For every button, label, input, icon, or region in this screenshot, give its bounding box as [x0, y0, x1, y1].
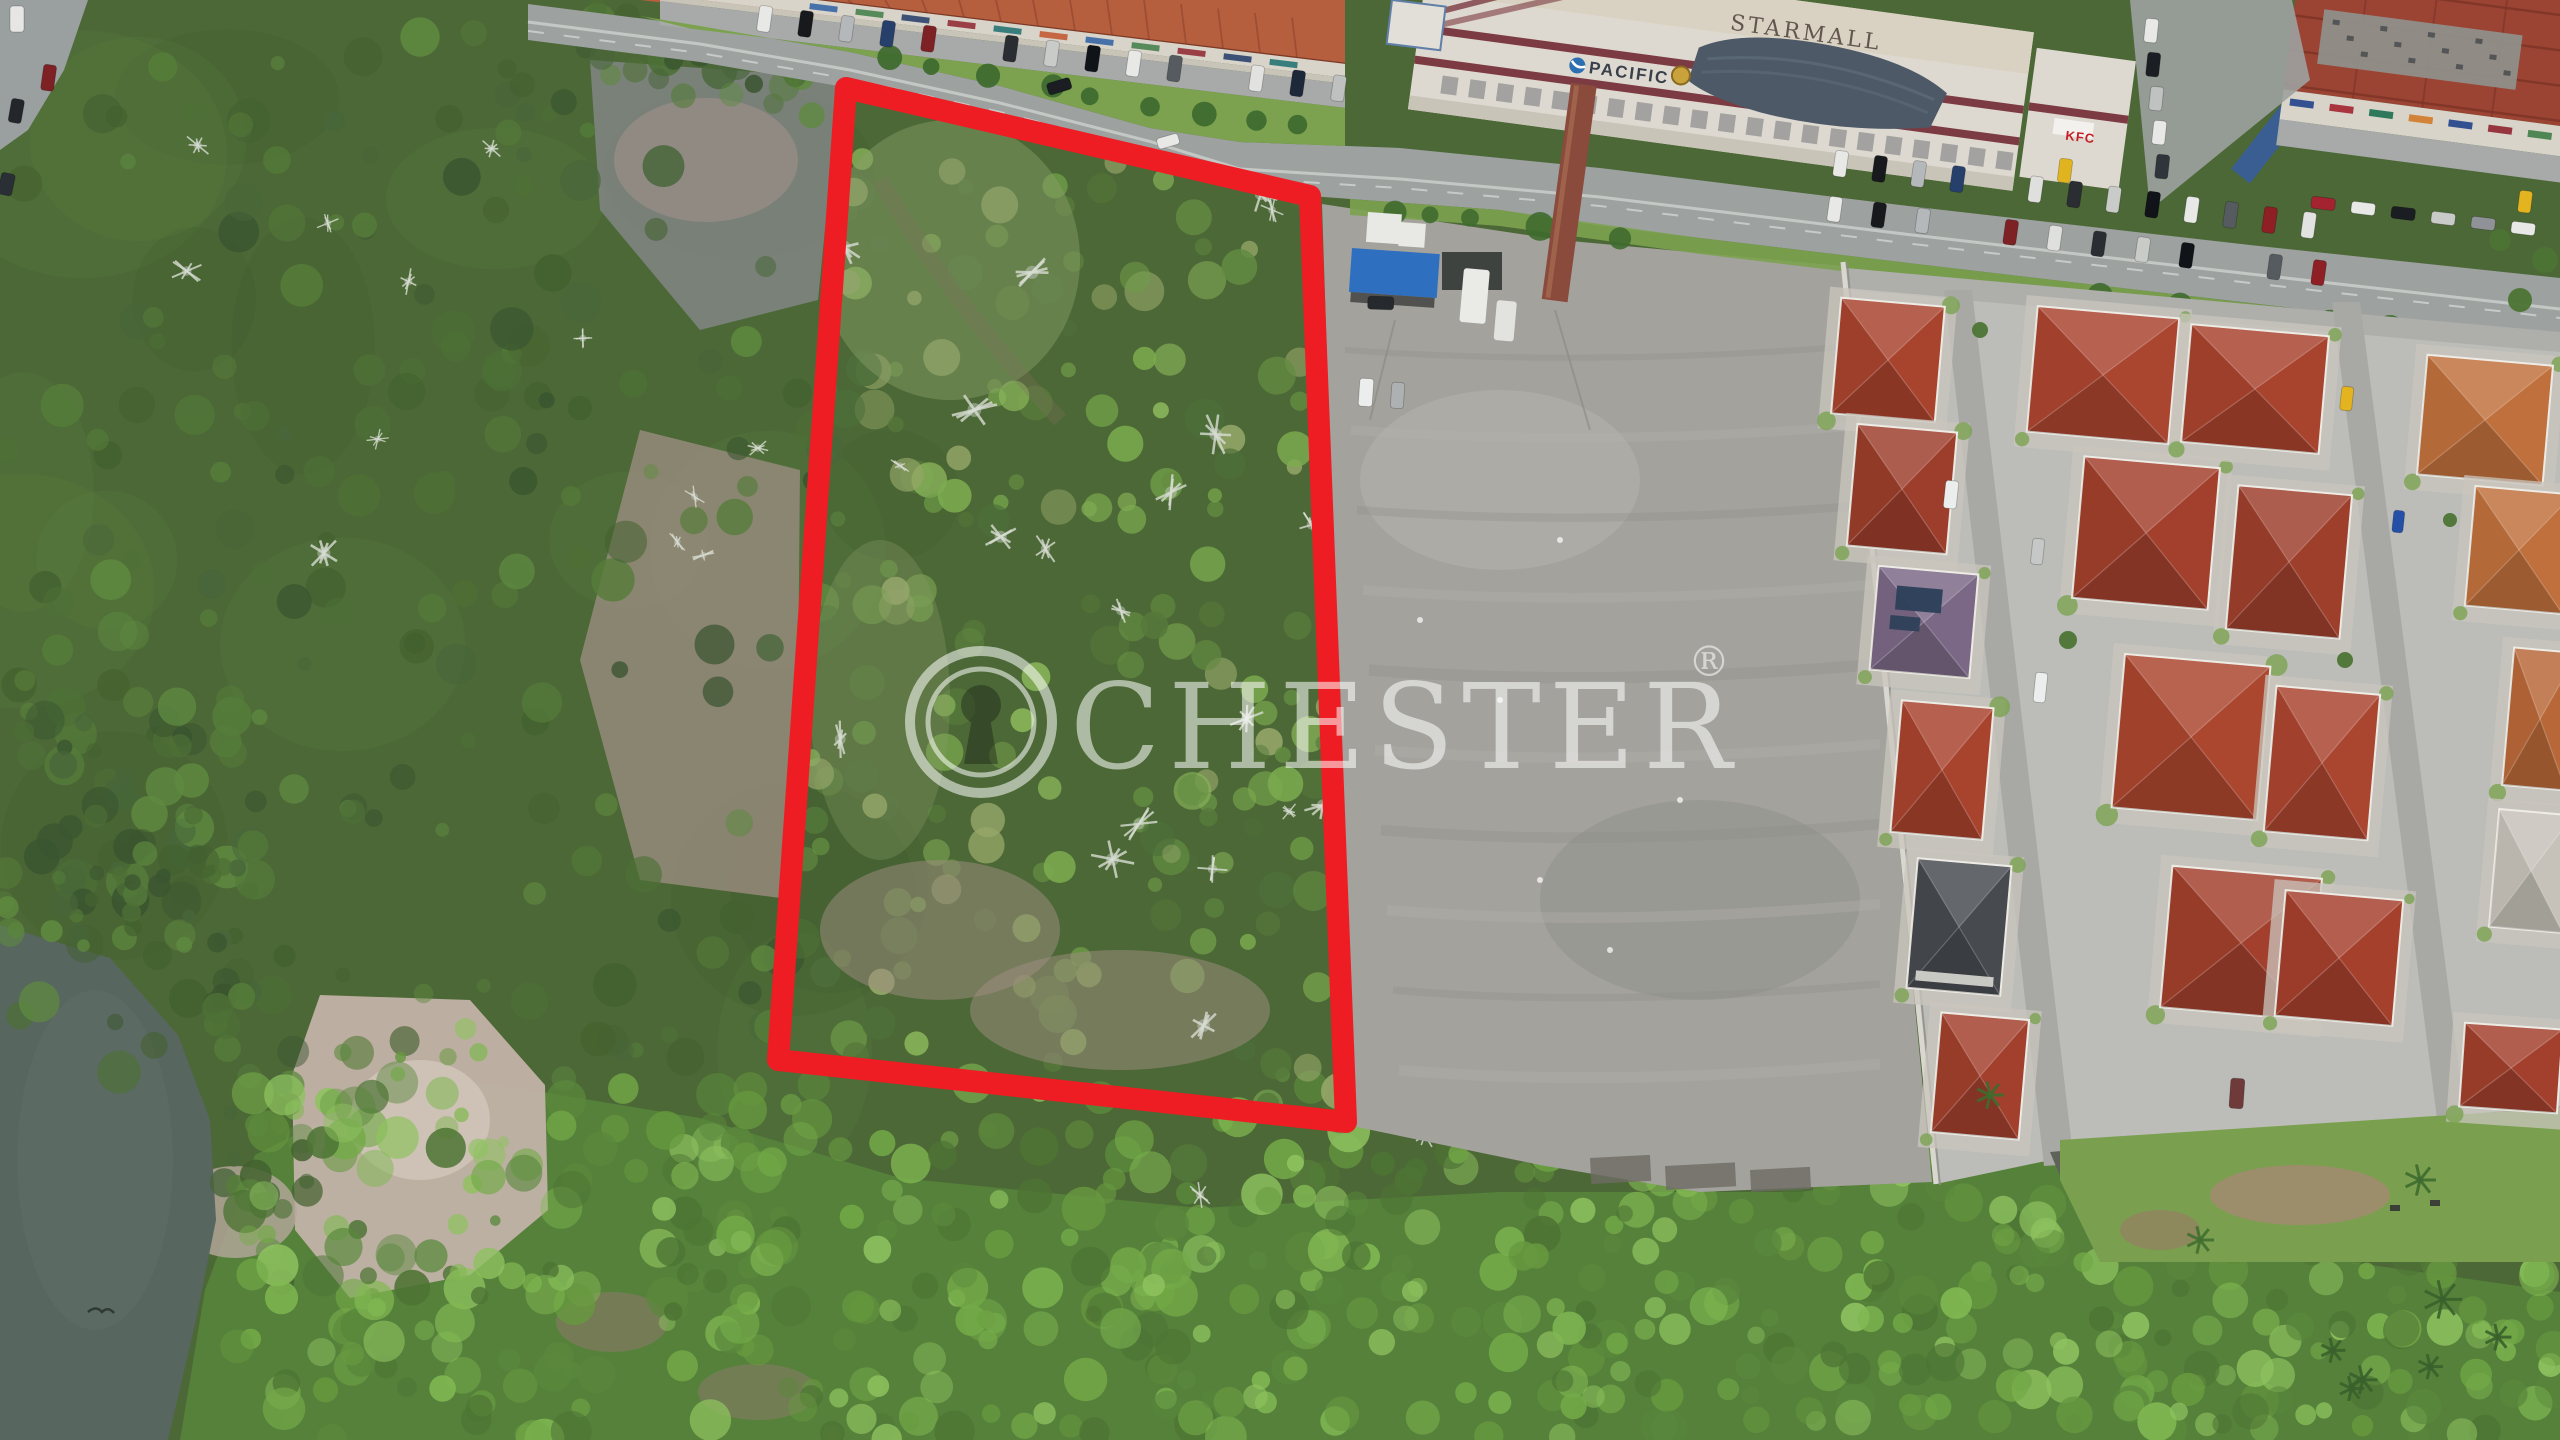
tree-canopy — [388, 373, 425, 410]
tree-canopy — [698, 1146, 734, 1182]
dirt-patch — [2120, 1210, 2200, 1250]
tree-canopy — [1284, 612, 1312, 640]
tree-canopy — [1570, 1198, 1595, 1223]
tree-canopy — [277, 584, 312, 619]
tree-canopy — [511, 982, 548, 1019]
tree-canopy — [2329, 1311, 2356, 1338]
tree-canopy — [418, 594, 447, 623]
tree-canopy — [1041, 489, 1077, 525]
tree-canopy — [52, 871, 66, 885]
tree-canopy — [245, 791, 267, 813]
tree-canopy — [228, 112, 253, 137]
tree-canopy — [2019, 1201, 2056, 1238]
tree-canopy — [1293, 1185, 1316, 1208]
tree-canopy — [334, 1044, 351, 1061]
tree-canopy — [1133, 347, 1156, 370]
tree-canopy — [1858, 1306, 1884, 1332]
storefront-window — [1884, 136, 1902, 156]
tree-canopy — [400, 629, 434, 663]
tree-canopy — [2212, 1414, 2232, 1434]
tree-canopy — [187, 845, 207, 865]
tree-canopy — [2137, 1402, 2176, 1440]
tree-canopy — [1864, 1261, 1895, 1292]
tree-canopy — [591, 558, 634, 601]
tree-canopy — [2009, 1266, 2029, 1286]
tree-canopy — [726, 809, 753, 836]
tree-canopy — [122, 903, 141, 922]
tree-canopy — [828, 1137, 852, 1161]
house — [2250, 675, 2394, 858]
tree-canopy — [439, 1048, 456, 1065]
roadside-tree — [1609, 227, 1631, 249]
tree-canopy — [771, 1286, 811, 1326]
tree-canopy — [490, 307, 533, 350]
tree-canopy — [1084, 493, 1113, 522]
tree-canopy — [978, 1113, 1014, 1149]
tree-canopy — [850, 1294, 880, 1324]
house — [2212, 474, 2365, 656]
tree-canopy — [2310, 1342, 2327, 1359]
car — [1358, 378, 1374, 407]
car — [2151, 120, 2166, 145]
tree-canopy — [225, 183, 263, 221]
tree-canopy — [252, 709, 268, 725]
storefront-window — [1968, 147, 1986, 167]
tree-canopy — [2465, 1321, 2493, 1349]
tree-canopy — [85, 893, 99, 907]
tree-canopy — [14, 670, 35, 691]
house — [1893, 847, 2026, 1013]
tree-canopy — [1395, 1167, 1423, 1195]
tree-canopy — [503, 1369, 537, 1403]
tree-canopy — [1277, 431, 1313, 467]
tree-canopy — [499, 554, 535, 590]
tree-canopy — [214, 858, 232, 876]
aerial-photo: STARMALL PACIFIC KFC CHESTER ® — [0, 0, 2560, 1440]
tree-canopy — [148, 874, 171, 897]
tree-canopy — [303, 456, 335, 488]
tree-canopy — [174, 395, 214, 435]
tree-canopy — [1243, 1384, 1268, 1409]
tree-canopy — [250, 1181, 279, 1210]
tree-canopy — [2146, 1370, 2168, 1392]
tree-canopy — [482, 351, 522, 391]
tree-canopy — [363, 1321, 404, 1362]
car — [1390, 382, 1405, 409]
car — [2431, 211, 2456, 226]
tree-canopy — [498, 59, 517, 78]
tree-canopy — [1154, 344, 1186, 376]
tree-canopy — [666, 1038, 704, 1076]
tree-canopy — [207, 933, 227, 953]
burnt-patch — [1590, 1155, 1651, 1184]
tree-canopy — [451, 580, 478, 607]
tree-canopy — [454, 1108, 469, 1123]
tree-canopy — [436, 644, 477, 685]
equipment — [2430, 1200, 2440, 1206]
tree-canopy — [677, 1263, 699, 1285]
tree-canopy — [2172, 1280, 2190, 1298]
tree-canopy — [727, 437, 750, 460]
tree-canopy — [580, 123, 595, 138]
tree-canopy — [737, 476, 758, 497]
tree-canopy — [1899, 1354, 1931, 1386]
tree-canopy — [1652, 1217, 1677, 1242]
median-tree — [1081, 87, 1099, 105]
tree-canopy — [1747, 1327, 1764, 1344]
tree-canopy — [1729, 1199, 1754, 1224]
tree-canopy — [365, 809, 383, 827]
tree-canopy — [1064, 1358, 1107, 1401]
tree-canopy — [292, 1176, 323, 1207]
tree-canopy — [435, 105, 463, 133]
tree-canopy — [1878, 1350, 1902, 1374]
tree-canopy — [441, 332, 471, 362]
tree-canopy — [236, 1259, 268, 1291]
tree-canopy — [397, 1377, 417, 1397]
tree-canopy — [525, 1275, 565, 1315]
debris — [1417, 617, 1423, 623]
tree-canopy — [904, 1031, 928, 1055]
tree-canopy — [220, 1330, 254, 1364]
tree-canopy — [1150, 899, 1181, 930]
tree-canopy — [1153, 1391, 1182, 1420]
tree-canopy — [1342, 1241, 1371, 1270]
tree-canopy — [734, 1072, 768, 1106]
tree-canopy — [400, 17, 439, 56]
storefront-window — [1857, 132, 1875, 152]
tree-canopy — [432, 471, 455, 494]
tree-canopy — [738, 981, 761, 1004]
tree-canopy — [1754, 1229, 1782, 1257]
tree-canopy — [658, 909, 681, 932]
tree-canopy — [2519, 1256, 2559, 1296]
tree-canopy — [323, 598, 353, 628]
tree-canopy — [546, 1111, 576, 1141]
tree-canopy — [829, 1388, 848, 1407]
tree-canopy — [745, 75, 763, 93]
house — [2476, 798, 2560, 950]
storefront-window — [1440, 76, 1458, 96]
tree-canopy — [1009, 474, 1024, 489]
tree-canopy — [888, 417, 904, 433]
tree-canopy — [2265, 1386, 2292, 1413]
tree-canopy — [1978, 1400, 2011, 1433]
tree-canopy — [755, 256, 776, 277]
tree-canopy — [2253, 1309, 2280, 1336]
tree-canopy — [340, 1342, 364, 1366]
white-tent — [1366, 212, 1402, 244]
tree-canopy — [913, 1342, 946, 1375]
storefront-window — [1551, 91, 1569, 111]
tree-canopy — [2388, 1285, 2407, 1304]
car — [1943, 480, 1959, 509]
tree-canopy — [298, 657, 312, 671]
debris — [1557, 537, 1563, 543]
tree-canopy — [1188, 261, 1226, 299]
tree-canopy — [1148, 878, 1162, 892]
tree-canopy — [1835, 1400, 1871, 1436]
tree-canopy — [784, 1122, 818, 1156]
tree-canopy — [1743, 1407, 1770, 1434]
tree-canopy — [1369, 1329, 1395, 1355]
tree-canopy — [2286, 1313, 2314, 1341]
tree-canopy — [460, 733, 475, 748]
tree-canopy — [216, 686, 245, 715]
tree-canopy — [680, 507, 708, 535]
tree-canopy — [210, 462, 231, 483]
tree-canopy — [891, 1144, 931, 1184]
house — [2452, 474, 2560, 631]
tree-canopy — [560, 160, 601, 201]
tree-canopy — [1086, 394, 1119, 427]
tree-canopy — [952, 1262, 978, 1288]
tree-canopy — [625, 856, 662, 893]
estate-tree — [1972, 322, 1988, 338]
tree-canopy — [719, 82, 743, 106]
tree-canopy — [740, 1151, 782, 1193]
tree-canopy — [1256, 911, 1281, 936]
tree-canopy — [595, 793, 618, 816]
tree-canopy — [1024, 1311, 1059, 1346]
tree-canopy — [1092, 284, 1118, 310]
tree-canopy — [946, 446, 971, 471]
dirt-patch — [2210, 1165, 2390, 1225]
tree-canopy — [2232, 1393, 2268, 1429]
tree-canopy — [2358, 1263, 2375, 1280]
tree-canopy — [778, 1377, 798, 1397]
tree-canopy — [448, 1214, 469, 1235]
estate-tree — [2337, 652, 2353, 668]
tree-canopy — [150, 334, 166, 350]
tree-canopy — [1283, 1356, 1307, 1380]
tree-canopy — [395, 1052, 406, 1063]
median-tree — [1140, 97, 1160, 117]
tree-canopy — [515, 177, 534, 196]
car — [2030, 538, 2045, 565]
tree-canopy — [920, 1371, 953, 1404]
tree-canopy — [68, 860, 88, 880]
tree-canopy — [2170, 1403, 2188, 1421]
car — [2154, 154, 2169, 179]
car — [2511, 221, 2536, 236]
median-tree — [1246, 110, 1266, 130]
tree-canopy — [964, 1299, 1008, 1343]
tree-canopy — [1208, 488, 1222, 502]
truck — [1494, 300, 1517, 342]
tree-canopy — [697, 936, 730, 969]
house — [2445, 1012, 2560, 1131]
tree-canopy — [1635, 1319, 1656, 1340]
tree-canopy — [624, 1159, 648, 1183]
tree-canopy — [2113, 1266, 2153, 1306]
tree-canopy — [1117, 505, 1146, 534]
tree-canopy — [24, 839, 60, 875]
tree-canopy — [143, 307, 164, 328]
tree-canopy — [1214, 1387, 1245, 1418]
tree-canopy — [1315, 1277, 1343, 1305]
tree-canopy — [2056, 1397, 2093, 1434]
solar-panels — [1895, 586, 1943, 614]
estate-tree — [2443, 513, 2457, 527]
tree-canopy — [2427, 1309, 2463, 1345]
tree-canopy — [415, 1320, 435, 1340]
tree-canopy — [912, 1273, 938, 1299]
tree-canopy — [799, 102, 825, 128]
tree-canopy — [490, 1215, 501, 1226]
tree-canopy — [1244, 818, 1264, 838]
tree-canopy — [623, 58, 648, 83]
tree-canopy — [1996, 1369, 2029, 1402]
storefront-window — [1635, 102, 1653, 122]
rock-tint — [614, 98, 798, 222]
tree-canopy — [1162, 845, 1181, 864]
roadside-tree — [1526, 212, 1555, 241]
tree-canopy — [510, 72, 535, 97]
car — [2351, 201, 2376, 216]
tree-canopy — [1346, 1297, 1378, 1329]
tree-canopy — [699, 1113, 727, 1141]
tree-canopy — [1020, 1127, 1059, 1166]
tree-canopy — [1249, 1251, 1268, 1270]
tree-canopy — [42, 635, 73, 666]
tree-canopy — [1606, 1333, 1628, 1355]
tree-canopy — [1141, 611, 1169, 639]
tree-canopy — [455, 1018, 477, 1040]
tree-canopy — [534, 1353, 573, 1392]
tree-canopy — [237, 830, 268, 861]
tree-canopy — [273, 945, 296, 968]
car — [2033, 672, 2048, 703]
tree-canopy — [534, 254, 572, 292]
soil-patch — [970, 950, 1270, 1070]
tree-canopy — [215, 509, 254, 548]
tree-canopy — [184, 806, 203, 825]
tree-canopy — [719, 900, 753, 934]
tree-canopy — [882, 1180, 903, 1201]
white-tent — [1398, 222, 1426, 248]
tree-canopy — [394, 1270, 430, 1306]
tree-canopy — [429, 1375, 456, 1402]
tree-canopy — [1839, 1353, 1871, 1385]
tree-canopy — [176, 937, 192, 953]
tree-canopy — [1796, 1397, 1824, 1425]
tree-canopy — [932, 1202, 956, 1226]
tree-canopy — [716, 375, 742, 401]
tree-canopy — [1087, 173, 1117, 203]
tree-canopy — [833, 1328, 856, 1351]
tree-canopy — [226, 1152, 241, 1167]
tree-canopy — [280, 264, 323, 307]
tree-canopy — [258, 1225, 276, 1243]
tree-canopy — [240, 401, 270, 431]
tree-canopy — [879, 1300, 901, 1322]
storefront-window — [1940, 143, 1958, 163]
tree-canopy — [1190, 928, 1216, 954]
tree-canopy — [1061, 1229, 1079, 1247]
tree-canopy — [269, 205, 306, 242]
tree-canopy — [435, 1303, 475, 1343]
tree-canopy — [720, 1304, 760, 1344]
tree-canopy — [1925, 1394, 1951, 1420]
tree-canopy — [1655, 1270, 1679, 1294]
tree-canopy — [483, 197, 509, 223]
debris — [1677, 797, 1683, 803]
tree-canopy — [84, 805, 107, 828]
median-tree — [923, 58, 940, 75]
tree-canopy — [146, 767, 185, 806]
tree-canopy — [690, 1399, 731, 1440]
tree-canopy — [1229, 1284, 1259, 1314]
tree-canopy — [1992, 1224, 2015, 1247]
storefront-window — [1829, 128, 1847, 148]
tree-canopy — [148, 52, 177, 81]
tree-canopy — [928, 1141, 957, 1170]
tree-canopy — [133, 841, 158, 866]
estate-tree — [2508, 288, 2532, 312]
car — [2148, 86, 2163, 111]
tree-canopy — [352, 213, 377, 238]
car — [2517, 190, 2533, 213]
tree-canopy — [756, 634, 784, 662]
tree-canopy — [1371, 1152, 1395, 1176]
house — [2168, 313, 2343, 471]
tree-canopy — [1059, 1414, 1082, 1437]
tree-canopy — [2460, 1359, 2492, 1391]
tree-canopy — [13, 721, 34, 742]
tree-canopy — [1488, 1391, 1511, 1414]
debris — [1607, 947, 1613, 953]
tree-canopy — [2388, 1369, 2413, 1394]
tree-canopy — [49, 751, 77, 779]
tree-canopy — [528, 793, 560, 825]
tree-canopy — [83, 94, 122, 133]
tree-canopy — [344, 37, 383, 76]
tree-canopy — [583, 1132, 618, 1167]
tree-canopy — [307, 1338, 335, 1366]
tree-canopy — [1199, 601, 1225, 627]
blue-roof-stall — [1349, 248, 1440, 298]
tree-canopy — [695, 625, 735, 665]
median-tree — [976, 64, 1000, 88]
tree-canopy — [664, 1302, 682, 1320]
tree-canopy — [473, 1248, 504, 1279]
storefront-window — [1690, 109, 1708, 129]
car — [2145, 52, 2160, 77]
tree-canopy — [1256, 1187, 1282, 1213]
tree-canopy — [335, 967, 350, 982]
tree-canopy — [608, 1073, 639, 1104]
tree-canopy — [1115, 1120, 1154, 1159]
tree-canopy — [125, 874, 141, 890]
tree-canopy — [275, 465, 294, 484]
tree-canopy — [1861, 1231, 1884, 1254]
tree-canopy — [567, 546, 591, 570]
tree-canopy — [958, 512, 973, 527]
tree-canopy — [98, 1051, 141, 1094]
debris — [1537, 877, 1543, 883]
tree-canopy — [788, 1393, 817, 1422]
tree-canopy — [1344, 1191, 1368, 1215]
tree-canopy — [1038, 776, 1062, 800]
tree-canopy — [1406, 1401, 1440, 1435]
tree-canopy — [169, 979, 208, 1018]
tree-canopy — [279, 774, 309, 804]
tree-canopy — [1120, 262, 1151, 293]
tree-canopy — [414, 984, 433, 1003]
tree-canopy — [89, 866, 104, 881]
equipment — [2390, 1205, 2400, 1211]
